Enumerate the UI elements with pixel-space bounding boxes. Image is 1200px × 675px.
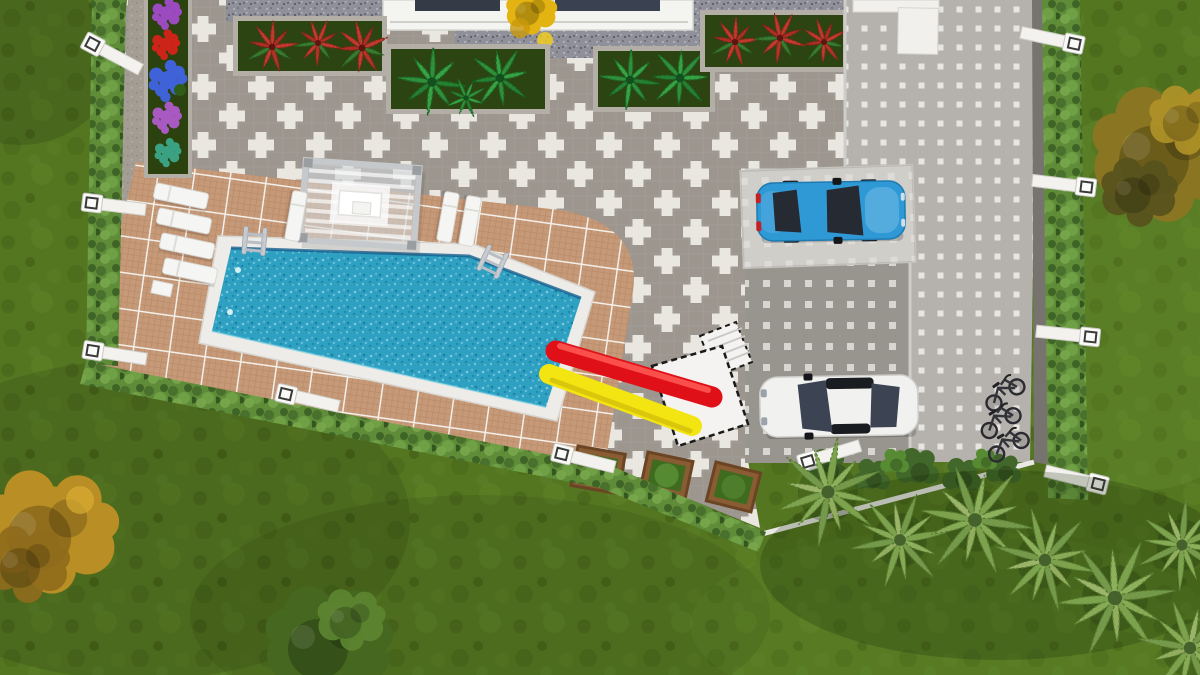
blue-car-taillight [756,193,761,203]
hedge-right [1042,0,1088,500]
white-car-rear-glass [870,383,901,428]
planter-bed-red [700,4,854,72]
aerial-site-render: Aerial 3D render of residential site pla… [0,0,1200,675]
white-car-roof-rail [830,423,870,434]
flower-bed [144,0,192,178]
blue-car-rear-glass [773,190,802,233]
pergola-table [352,202,371,215]
white-car-mirror [804,432,813,439]
blue-car-mirror [833,237,842,244]
golden-entrance-plant [510,18,530,38]
site-plan-canvas: Aerial 3D render of residential site pla… [0,0,1200,675]
white-car [759,372,918,441]
planter-bed-fern [386,34,550,126]
pool-light [227,309,233,315]
pool-light [235,267,241,273]
building-window [555,0,660,11]
planter-bed-red [233,13,395,79]
white-car-mirror [803,373,812,380]
blue-car-windshield [827,185,864,236]
building-window [415,0,500,11]
white-car-roof-rail [826,377,874,389]
blue-car-mirror [832,178,841,185]
blue-car [755,177,905,246]
pergola [298,158,426,256]
blue-car-taillight [756,221,761,231]
